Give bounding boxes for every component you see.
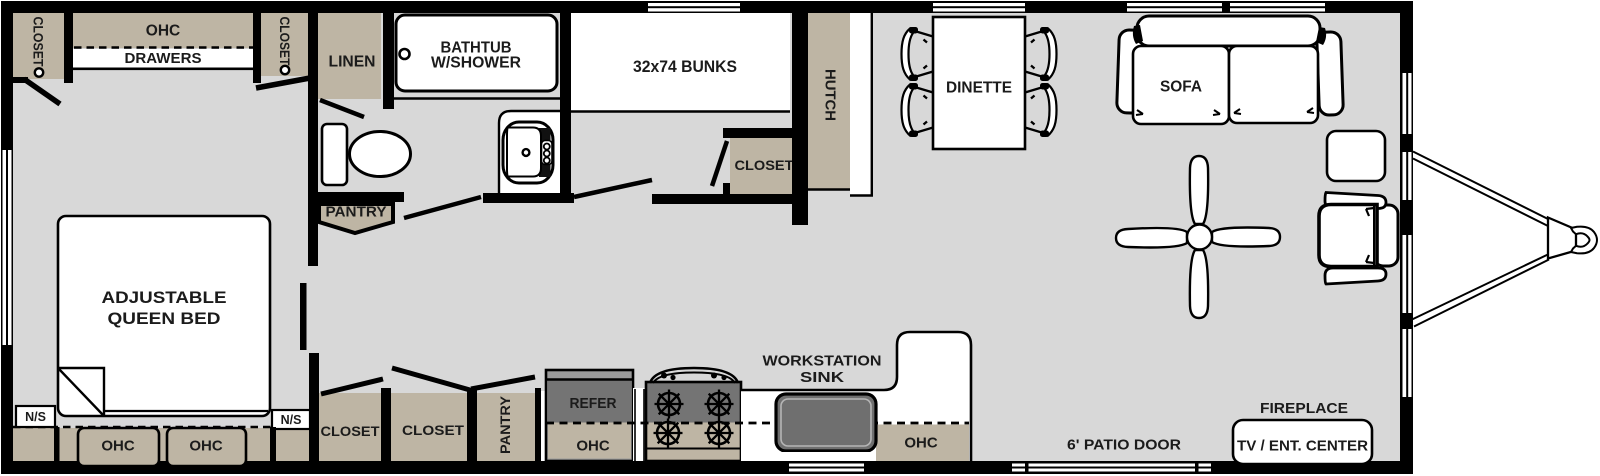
svg-text:32x74 BUNKS: 32x74 BUNKS [633, 58, 737, 76]
svg-text:W/SHOWER: W/SHOWER [431, 55, 521, 72]
svg-text:QUEEN BED: QUEEN BED [108, 310, 221, 328]
svg-text:SOFA: SOFA [1160, 79, 1202, 96]
svg-text:CLOSET: CLOSET [31, 17, 46, 68]
svg-text:REFER: REFER [570, 396, 617, 412]
svg-text:PANTRY: PANTRY [326, 205, 387, 221]
svg-text:LINEN: LINEN [329, 54, 376, 71]
svg-text:FIREPLACE: FIREPLACE [1260, 401, 1348, 417]
svg-text:OHC: OHC [904, 435, 938, 452]
svg-text:N/S: N/S [281, 413, 302, 427]
svg-text:CLOSET: CLOSET [277, 17, 292, 67]
svg-text:HUTCH: HUTCH [822, 69, 839, 121]
svg-text:OHC: OHC [189, 438, 223, 455]
svg-text:N/S: N/S [25, 410, 46, 424]
svg-text:OHC: OHC [101, 438, 135, 455]
svg-text:TV / ENT. CENTER: TV / ENT. CENTER [1237, 438, 1368, 455]
svg-text:WORKSTATION: WORKSTATION [763, 353, 882, 370]
svg-text:CLOSET: CLOSET [402, 422, 464, 438]
svg-text:CLOSET: CLOSET [735, 157, 794, 173]
svg-text:6' PATIO DOOR: 6' PATIO DOOR [1067, 437, 1181, 454]
svg-text:ADJUSTABLE: ADJUSTABLE [102, 289, 227, 307]
svg-text:DRAWERS: DRAWERS [125, 50, 202, 67]
svg-text:SINK: SINK [800, 369, 844, 386]
svg-text:DINETTE: DINETTE [946, 80, 1012, 97]
svg-text:CLOSET: CLOSET [321, 423, 380, 439]
svg-text:OHC: OHC [146, 23, 180, 40]
svg-text:PANTRY: PANTRY [497, 395, 513, 454]
svg-text:OHC: OHC [576, 438, 610, 455]
